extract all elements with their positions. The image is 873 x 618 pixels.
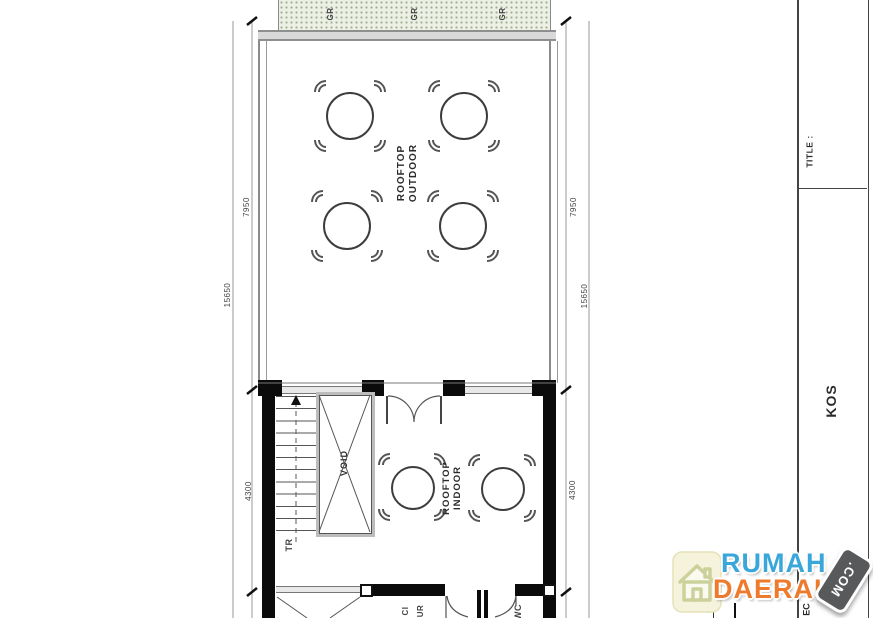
column <box>443 380 465 396</box>
project-name: KOS <box>823 384 839 418</box>
dim-right-total: 15650 <box>579 276 589 316</box>
stairs-label: TR <box>284 535 294 555</box>
title-block <box>797 0 869 618</box>
dim-left-lower: 4300 <box>243 471 253 511</box>
bottom-wall-rail <box>276 586 360 593</box>
outdoor-table-set <box>422 74 506 158</box>
indoor-left-wall <box>262 388 275 618</box>
outdoor-left-wall <box>258 41 267 383</box>
wc-label-fragment: WC <box>513 603 523 618</box>
title-block-label: TITLE : <box>804 132 815 172</box>
title-block-divider <box>797 188 867 189</box>
outdoor-table-set <box>421 184 505 268</box>
room-label-rooftop-indoor: ROOFTOP INDOOR <box>441 453 463 523</box>
door-jamb <box>477 590 481 618</box>
column <box>258 380 282 396</box>
floorplan-canvas: GR GR GR ROOFTOP OUTDOOR <box>0 0 873 618</box>
column-outline <box>543 584 556 597</box>
staircase <box>276 396 318 532</box>
round-table-icon <box>326 92 374 140</box>
round-table-icon <box>391 466 435 510</box>
column <box>362 380 384 396</box>
double-door-leaf <box>440 396 442 424</box>
laundry-label-fragment: UR <box>415 602 425 618</box>
round-table-icon <box>323 202 371 250</box>
mid-wall-segment <box>275 386 362 394</box>
bottom-wall-segment <box>373 584 445 596</box>
laundry-label-fragment: CI <box>400 602 410 618</box>
bottom-wall-segment <box>515 584 543 596</box>
dim-right-upper: 7950 <box>568 187 578 227</box>
void-label: VOID <box>338 443 350 483</box>
indoor-table-set <box>464 450 540 526</box>
clipped-line <box>734 603 736 618</box>
double-door-leaf <box>386 396 388 424</box>
round-table-icon <box>440 92 488 140</box>
grass-label: GR <box>325 4 335 24</box>
column-outline <box>360 584 373 597</box>
room-label-rooftop-outdoor: ROOFTOP OUTDOOR <box>396 133 420 213</box>
parapet-band <box>258 30 556 41</box>
grass-label: GR <box>409 4 419 24</box>
outdoor-right-wall <box>549 41 558 383</box>
door-jamb <box>484 590 488 618</box>
round-table-icon <box>439 202 487 250</box>
column <box>532 380 556 396</box>
dim-left-upper: 7950 <box>241 187 251 227</box>
indoor-table-set <box>374 449 450 525</box>
outdoor-table-set <box>308 74 392 158</box>
round-table-icon <box>481 467 525 511</box>
outdoor-table-set <box>305 184 389 268</box>
dim-left-total: 15650 <box>222 275 232 315</box>
dim-right-lower: 4300 <box>567 470 577 510</box>
grass-label: GR <box>497 4 507 24</box>
